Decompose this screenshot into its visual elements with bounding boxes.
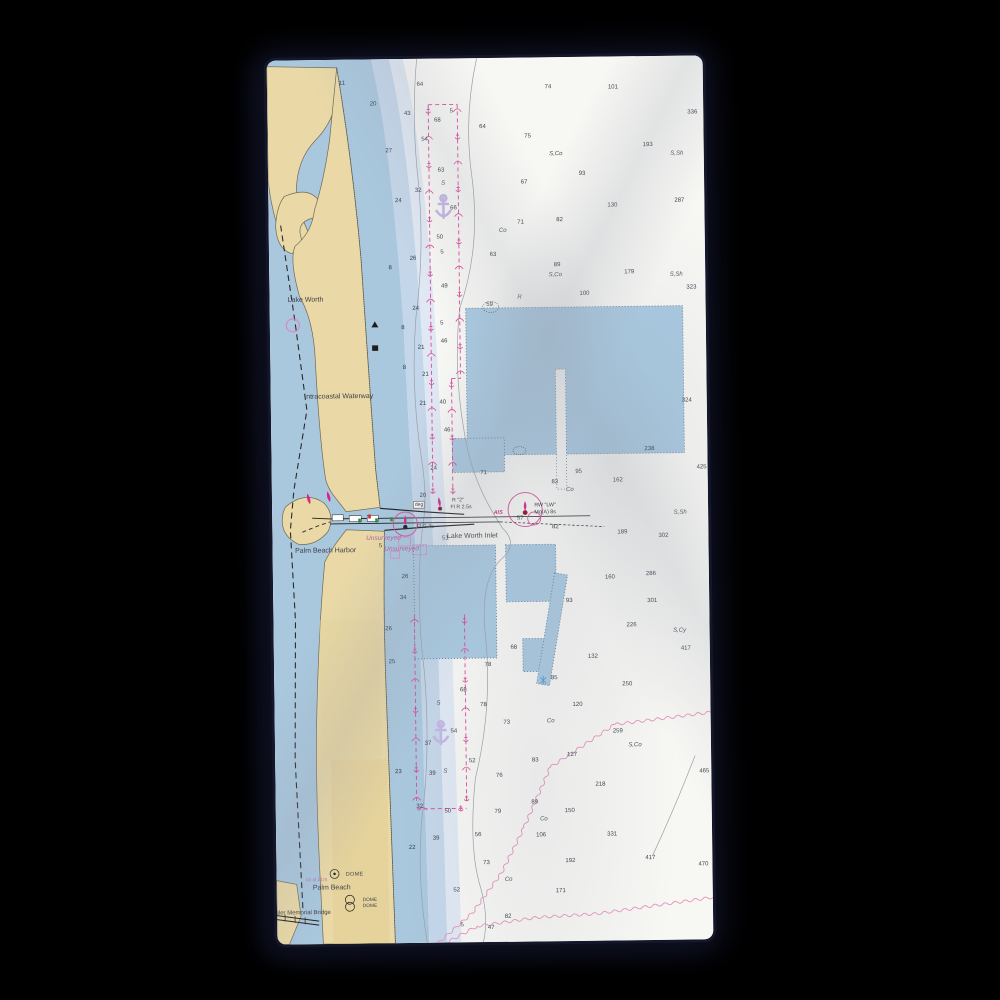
daybeacon-square (372, 345, 378, 351)
channel-marker-boxes (332, 514, 378, 522)
urban-tint (331, 759, 389, 944)
nautical-chart-graphic (267, 55, 714, 944)
urban-tint-2 (319, 619, 381, 760)
spoil-channel-gap (555, 369, 566, 489)
beach-towel: 112043646856454277410133675S,Co193S,Sh93… (267, 55, 714, 944)
towel-product-photo: 112043646856454277410133675S,Co193S,Sh93… (0, 0, 1000, 1000)
